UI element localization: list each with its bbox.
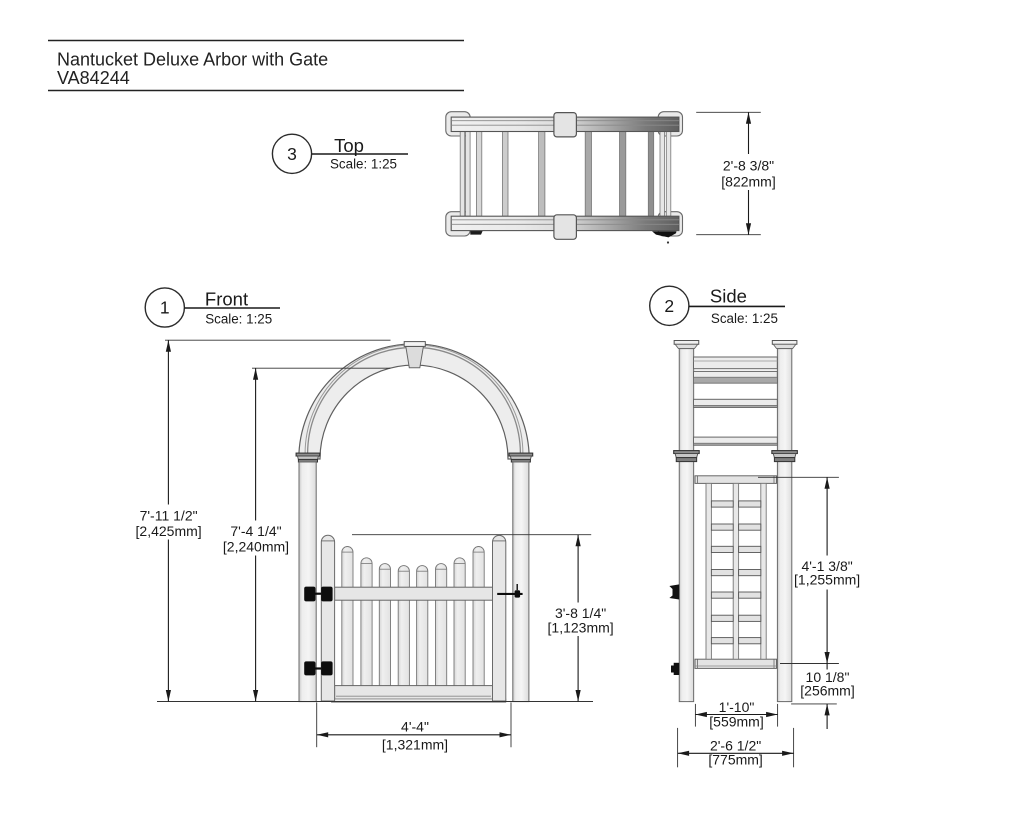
svg-text:Front: Front <box>205 288 248 309</box>
svg-text:Scale: 1:25: Scale: 1:25 <box>205 311 272 326</box>
svg-text:Scale: 1:25: Scale: 1:25 <box>330 157 397 172</box>
svg-text:2'-8 3/8": 2'-8 3/8" <box>723 158 774 174</box>
svg-text:Scale: 1:25: Scale: 1:25 <box>711 311 778 326</box>
svg-text:2: 2 <box>664 296 674 316</box>
svg-text:7'-4 1/4": 7'-4 1/4" <box>230 523 281 539</box>
svg-text:[2,425mm]: [2,425mm] <box>136 523 202 539</box>
svg-text:Nantucket Deluxe Arbor with Ga: Nantucket Deluxe Arbor with Gate <box>57 49 328 69</box>
svg-text:[1,321mm]: [1,321mm] <box>382 737 448 753</box>
svg-text:1: 1 <box>160 298 170 318</box>
svg-text:Top: Top <box>334 135 364 156</box>
svg-text:VA84244: VA84244 <box>57 68 130 88</box>
svg-text:[1,123mm]: [1,123mm] <box>548 619 614 635</box>
svg-text:[1,255mm]: [1,255mm] <box>794 571 860 587</box>
svg-text:7'-11 1/2": 7'-11 1/2" <box>140 507 198 523</box>
svg-text:[775mm]: [775mm] <box>708 752 762 768</box>
svg-text:Side: Side <box>710 286 747 307</box>
svg-text:[256mm]: [256mm] <box>800 682 854 698</box>
svg-text:[2,240mm]: [2,240mm] <box>223 538 289 554</box>
svg-text:[559mm]: [559mm] <box>709 713 763 729</box>
svg-text:[822mm]: [822mm] <box>721 173 775 189</box>
svg-text:4'-4": 4'-4" <box>401 718 429 734</box>
svg-text:3: 3 <box>287 144 297 164</box>
